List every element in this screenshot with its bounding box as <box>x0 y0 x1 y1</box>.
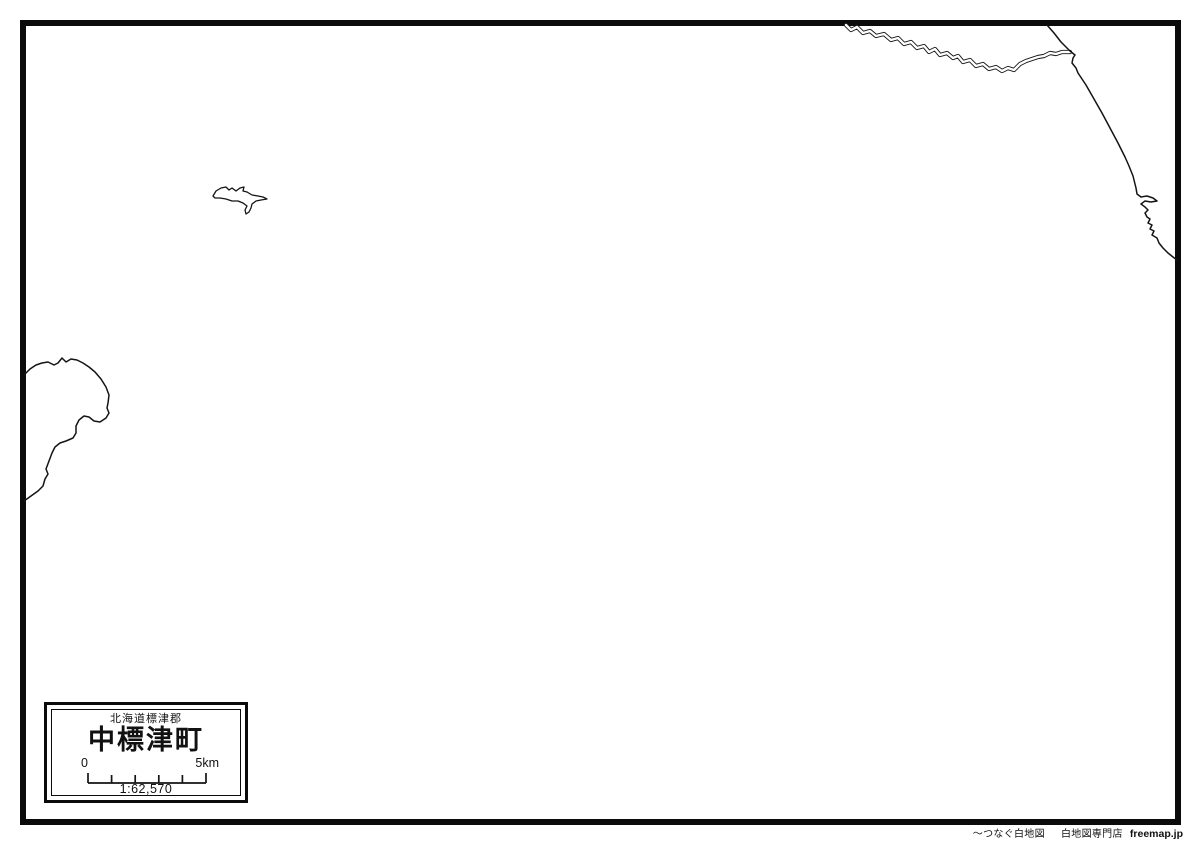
left-coastline <box>24 358 109 501</box>
footer-brand: freemap.jp <box>1130 828 1183 840</box>
footer-shop: 白地図専門店 <box>1061 829 1123 840</box>
boundary-coastline <box>1047 25 1177 260</box>
footer-tagline: 〜つなぐ白地図 <box>973 829 1045 840</box>
district-label: 北海道標津郡 <box>110 714 182 725</box>
scale-zero-label: 0 <box>81 757 88 770</box>
title-box: 北海道標津郡 中標津町 0 5km 1:62,570 <box>44 702 248 803</box>
blank-map-page: 北海道標津郡 中標津町 0 5km 1:62,570 〜つなぐ白地図 白地図専門… <box>0 0 1200 848</box>
town-title: 中標津町 <box>88 726 204 756</box>
scale-bar: 0 5km <box>87 757 205 783</box>
title-box-inner: 北海道標津郡 中標津町 0 5km 1:62,570 <box>51 709 241 796</box>
scale-ruler <box>87 772 207 785</box>
scale-max-label: 5km <box>195 757 219 770</box>
river-outline <box>846 25 1070 71</box>
footer-credit: 〜つなぐ白地図 白地図専門店 freemap.jp <box>0 828 1183 842</box>
river-outline-inner <box>846 25 1070 71</box>
lake-outline <box>213 187 267 214</box>
